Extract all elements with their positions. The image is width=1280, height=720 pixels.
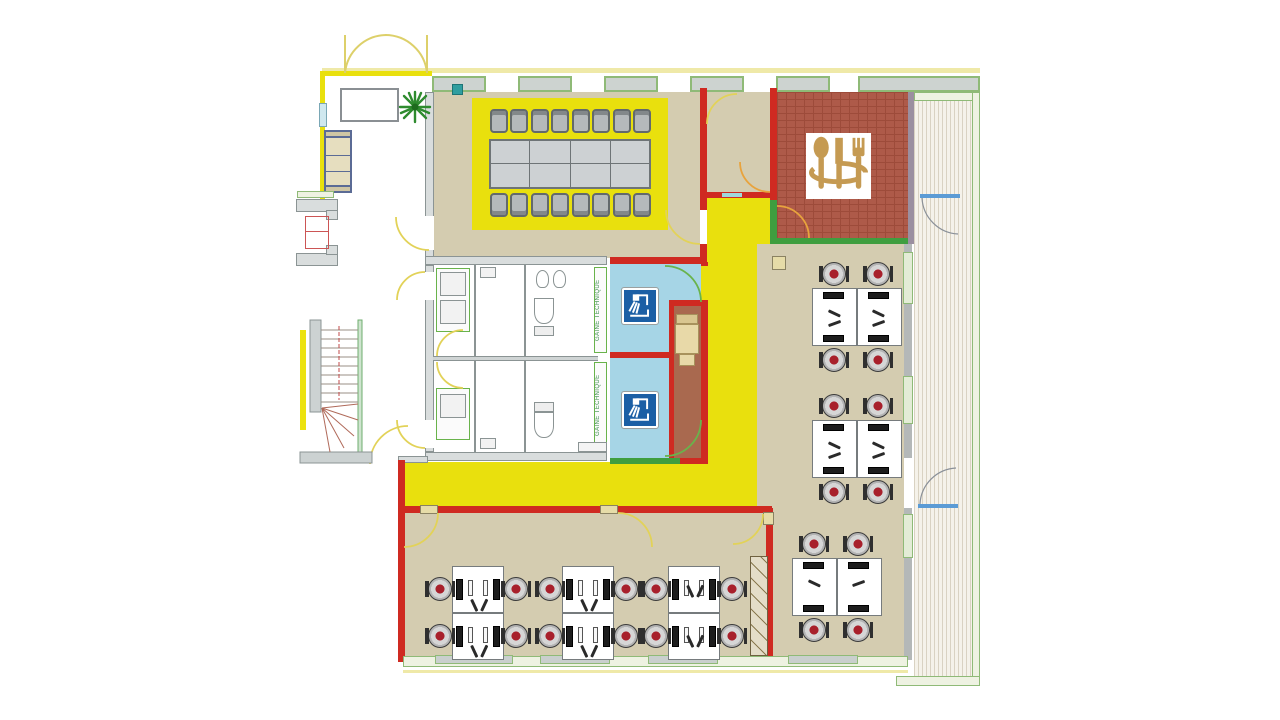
- door-arc: [707, 94, 737, 124]
- door-arc: [370, 426, 408, 464]
- door-arc-green: [665, 420, 701, 456]
- entrance-double-door: [345, 35, 427, 73]
- door-arc: [396, 217, 429, 250]
- staircase: [300, 320, 372, 463]
- door-arc: [733, 514, 763, 544]
- door-arc-orange: [740, 162, 770, 192]
- stair-wall-left: [310, 320, 321, 412]
- door-arc-orange: [777, 206, 809, 238]
- stair-landing: [300, 452, 372, 463]
- floor-plan: GAINE TECHNIQUE GAINE TECHNIQUE: [0, 0, 1280, 720]
- door-arc: [437, 330, 463, 356]
- door-arc: [618, 513, 652, 547]
- stair-accent: [300, 330, 306, 430]
- annotation-layer: [0, 0, 1280, 720]
- door-arc: [437, 362, 463, 388]
- door-arc: [666, 210, 700, 244]
- terrace-door-arc-office: [920, 468, 956, 504]
- door-arc: [397, 272, 425, 300]
- plant-icon: [400, 92, 430, 122]
- stair-wall-right: [358, 320, 362, 458]
- door-arc: [404, 513, 438, 547]
- door-arc: [397, 420, 425, 448]
- terrace-door-arc-kitchen: [922, 198, 958, 234]
- door-arc-green: [665, 266, 701, 302]
